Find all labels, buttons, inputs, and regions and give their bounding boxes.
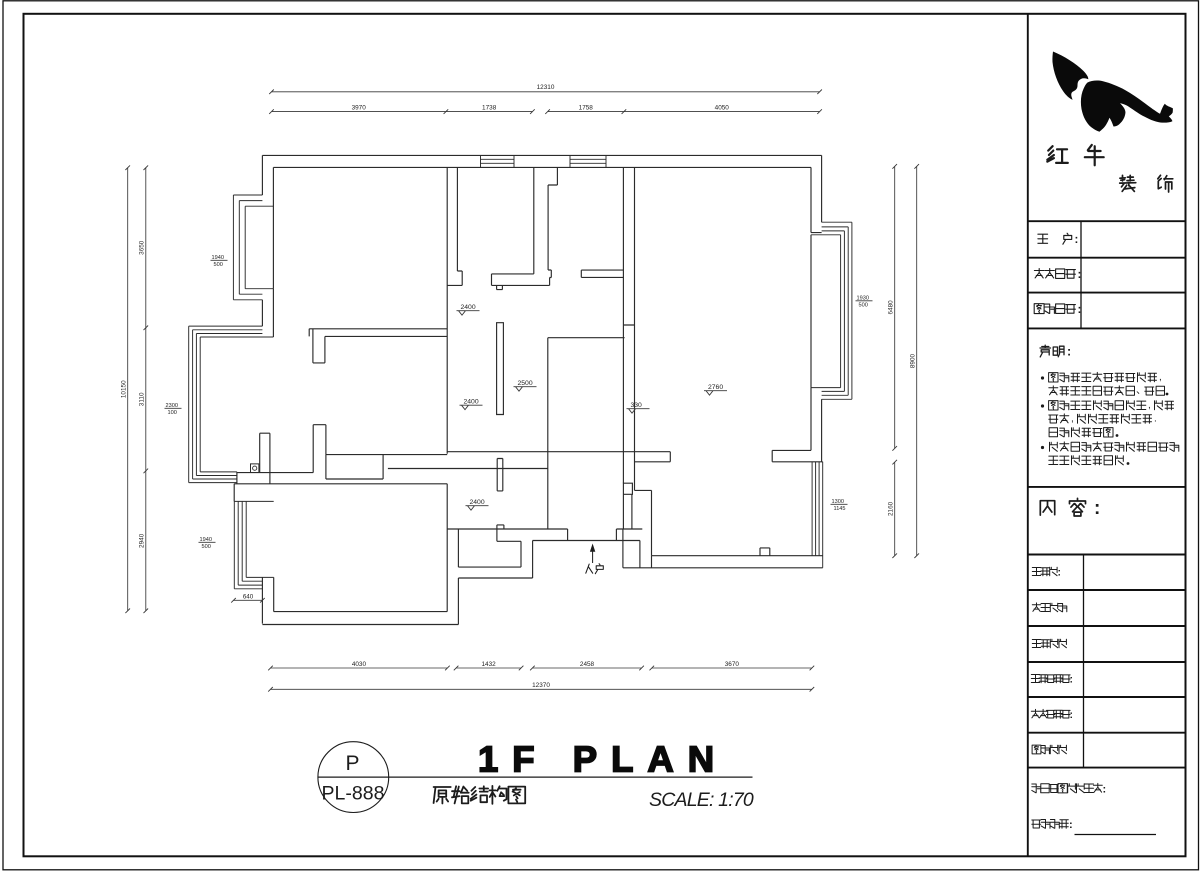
svg-text::: : [1058, 567, 1062, 579]
svg-text:2400: 2400 [461, 304, 476, 311]
svg-text:3110: 3110 [139, 392, 146, 406]
svg-text:640: 640 [243, 593, 254, 600]
svg-text:,: , [1148, 400, 1151, 411]
svg-text:2940: 2940 [139, 533, 146, 548]
svg-text::: : [1075, 234, 1079, 246]
svg-text:10150: 10150 [121, 380, 128, 398]
svg-text:12310: 12310 [537, 84, 555, 91]
svg-text:1758: 1758 [579, 104, 594, 111]
svg-text::: : [1094, 498, 1100, 519]
svg-text:4030: 4030 [352, 661, 367, 668]
svg-text::: : [1069, 819, 1073, 831]
svg-text:3650: 3650 [139, 240, 146, 255]
svg-text:12370: 12370 [532, 682, 550, 689]
svg-text:2400: 2400 [464, 399, 479, 406]
svg-text::: : [1078, 304, 1082, 316]
svg-text:2500: 2500 [518, 380, 533, 387]
svg-text:1F PLAN: 1F PLAN [478, 739, 728, 780]
svg-text:330: 330 [631, 402, 643, 409]
svg-text:3970: 3970 [352, 104, 367, 111]
svg-text:100: 100 [168, 410, 177, 416]
svg-text:,: , [1159, 372, 1162, 383]
svg-text:2160: 2160 [888, 501, 895, 516]
svg-text::: : [1067, 345, 1071, 359]
svg-text:3670: 3670 [725, 661, 740, 668]
svg-text:4050: 4050 [715, 104, 730, 111]
svg-text:PL-888: PL-888 [322, 783, 385, 805]
svg-text:.: . [1154, 414, 1157, 425]
svg-text:1432: 1432 [481, 661, 496, 668]
svg-text:1738: 1738 [482, 104, 497, 111]
svg-text:500: 500 [214, 262, 223, 268]
svg-text:8900: 8900 [910, 353, 917, 368]
svg-text:SCALE: 1:70: SCALE: 1:70 [649, 789, 754, 811]
svg-text:,: , [1071, 414, 1074, 425]
svg-text::: : [1070, 709, 1074, 721]
svg-text::: : [1103, 784, 1107, 796]
svg-text:P: P [345, 752, 359, 775]
svg-text:2458: 2458 [580, 661, 595, 668]
svg-text:2400: 2400 [470, 499, 485, 506]
svg-text:500: 500 [859, 303, 868, 309]
svg-text:500: 500 [202, 544, 211, 550]
svg-text::: : [1078, 269, 1082, 281]
svg-text:1145: 1145 [834, 506, 846, 512]
svg-text:2760: 2760 [708, 384, 723, 391]
svg-text::: : [1070, 674, 1074, 686]
svg-text:6480: 6480 [888, 300, 895, 315]
